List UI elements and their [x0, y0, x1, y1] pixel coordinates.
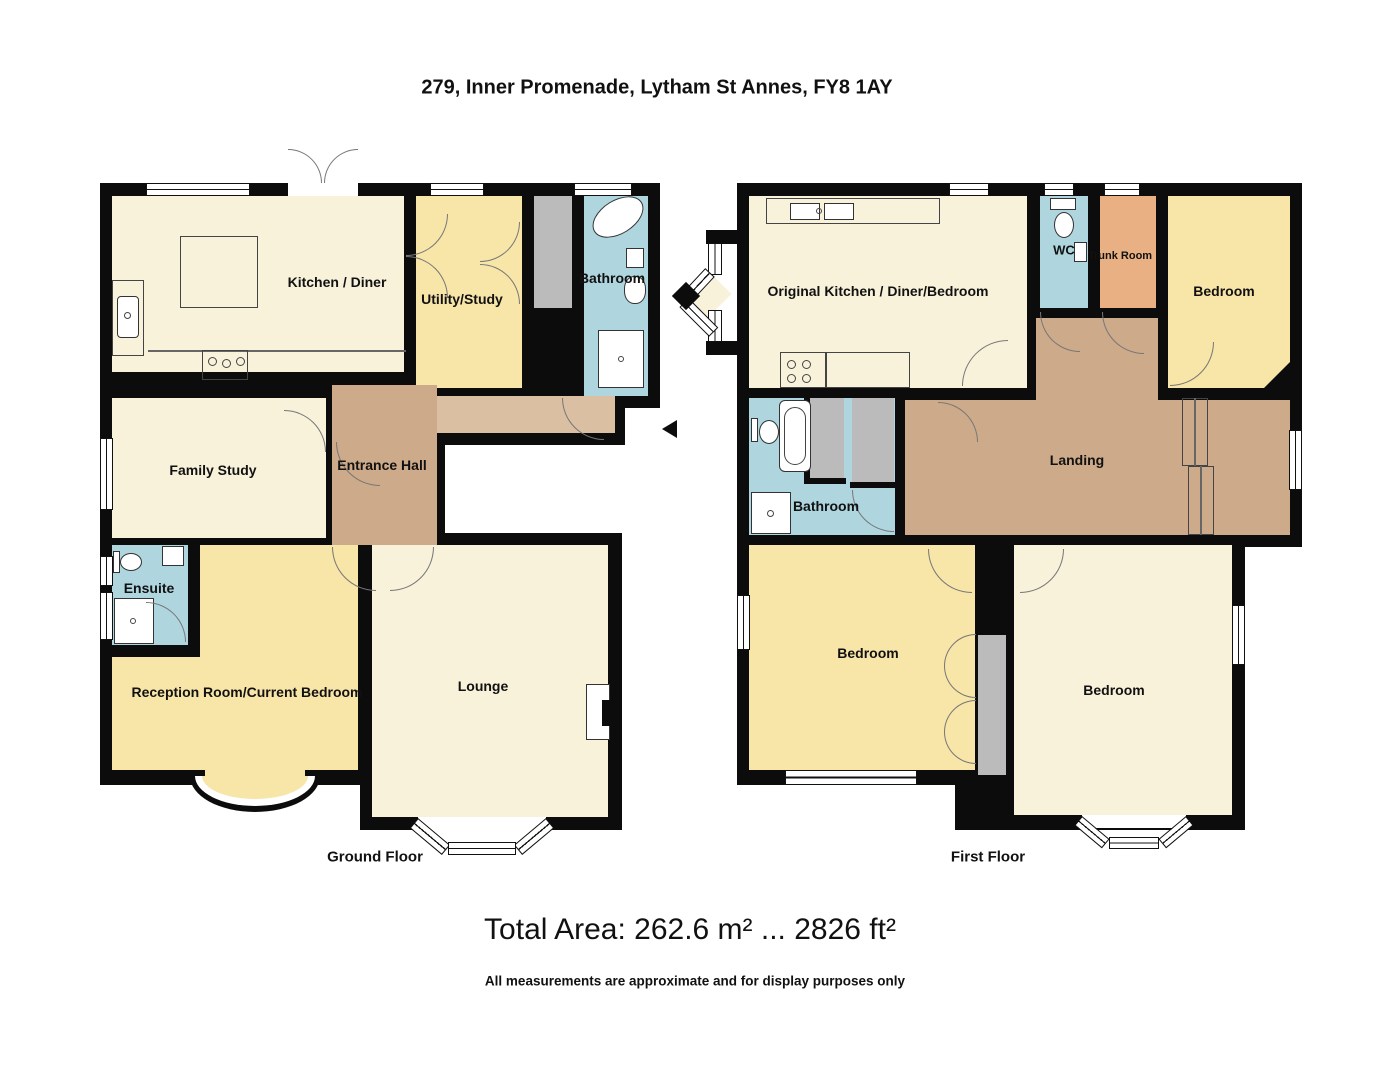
bathtub-inner [784, 407, 806, 465]
window [737, 595, 750, 650]
bay-window [448, 842, 516, 855]
window [430, 183, 484, 196]
room-label: Bathroom [793, 498, 859, 514]
bay-window-gap [1082, 815, 1186, 828]
room-reception [112, 657, 200, 770]
basin [1074, 242, 1087, 262]
stove-ring [802, 360, 811, 369]
floor-caption: Ground Floor [327, 849, 423, 866]
ff-closet [852, 398, 894, 482]
stairs-line [1200, 466, 1202, 535]
stairs-line [1194, 398, 1196, 466]
room-label: Ensuite [124, 580, 175, 596]
toilet-cistern [1050, 198, 1076, 210]
french-door-gap [288, 183, 358, 196]
sink-drain [124, 312, 131, 319]
window [146, 183, 250, 196]
window [574, 183, 632, 196]
window [100, 556, 113, 586]
room-label: WC [1053, 243, 1075, 258]
room-label: Entrance Hall [337, 457, 426, 473]
counter-edge [148, 350, 406, 352]
kitchen-island [180, 236, 258, 308]
basin [162, 546, 184, 566]
closet-wall [808, 478, 846, 484]
ff-closet [810, 398, 844, 478]
entry-arrow [662, 420, 677, 438]
hob-ring [208, 357, 217, 366]
window [1104, 183, 1140, 196]
stove [780, 352, 826, 388]
hob-ring [236, 357, 245, 366]
toilet [759, 420, 779, 444]
window [1232, 605, 1245, 665]
window [1044, 183, 1074, 196]
room-reception [200, 545, 358, 770]
stove-ring [787, 360, 796, 369]
window [785, 770, 917, 785]
floorplan-page: 279, Inner Promenade, Lytham St Annes, F… [0, 0, 1383, 1080]
room-label: Utility/Study [421, 291, 503, 307]
page-title: 279, Inner Promenade, Lytham St Annes, F… [421, 77, 892, 100]
room-label: Lounge [458, 678, 509, 694]
bay-window [1109, 837, 1159, 849]
sink-drain [816, 208, 822, 214]
kitchen-counter [826, 352, 910, 388]
window [100, 592, 113, 640]
window [1289, 430, 1302, 490]
toilet-cistern [751, 418, 758, 442]
shower-drain [130, 618, 136, 624]
bay-wall [706, 341, 737, 355]
toilet [1054, 212, 1074, 238]
hob-ring [222, 359, 231, 368]
room-label: Family Study [169, 462, 256, 478]
gf-closet [534, 196, 572, 308]
window [100, 438, 113, 510]
room-label: Bedroom [1083, 682, 1144, 698]
shower-drain [767, 510, 774, 517]
room-bedroom-right [1014, 545, 1232, 815]
bay-wall [706, 230, 737, 244]
room-label: Original Kitchen / Diner/Bedroom [768, 283, 989, 299]
shower-drain [618, 356, 624, 362]
bay-window-gap [418, 817, 546, 830]
door-arc [288, 149, 322, 183]
kitchen-sink [824, 203, 854, 220]
toilet-cistern [113, 551, 120, 573]
room-label: Trunk Room [1088, 250, 1152, 262]
room-label: Bedroom [837, 645, 898, 661]
bay-window [708, 243, 722, 275]
door-arc [324, 149, 358, 183]
room-label: Bedroom [1193, 283, 1254, 299]
basin [626, 248, 644, 268]
fireplace-notch [602, 700, 610, 726]
stove-ring [787, 374, 796, 383]
room-label: Landing [1050, 452, 1104, 468]
floor-caption: First Floor [951, 849, 1025, 866]
toilet [120, 553, 142, 571]
stove-ring [802, 374, 811, 383]
total-area-text: Total Area: 262.6 m² ... 2826 ft² [484, 913, 896, 947]
window [949, 183, 989, 196]
closet-wall [850, 482, 896, 488]
wardrobe [978, 635, 1006, 775]
corner-cut [1264, 362, 1290, 388]
room-label: Reception Room/Current Bedroom [131, 684, 362, 700]
room-label: Bathroom [579, 270, 645, 286]
disclaimer-text: All measurements are approximate and for… [485, 974, 905, 989]
room-label: Kitchen / Diner [288, 274, 387, 290]
